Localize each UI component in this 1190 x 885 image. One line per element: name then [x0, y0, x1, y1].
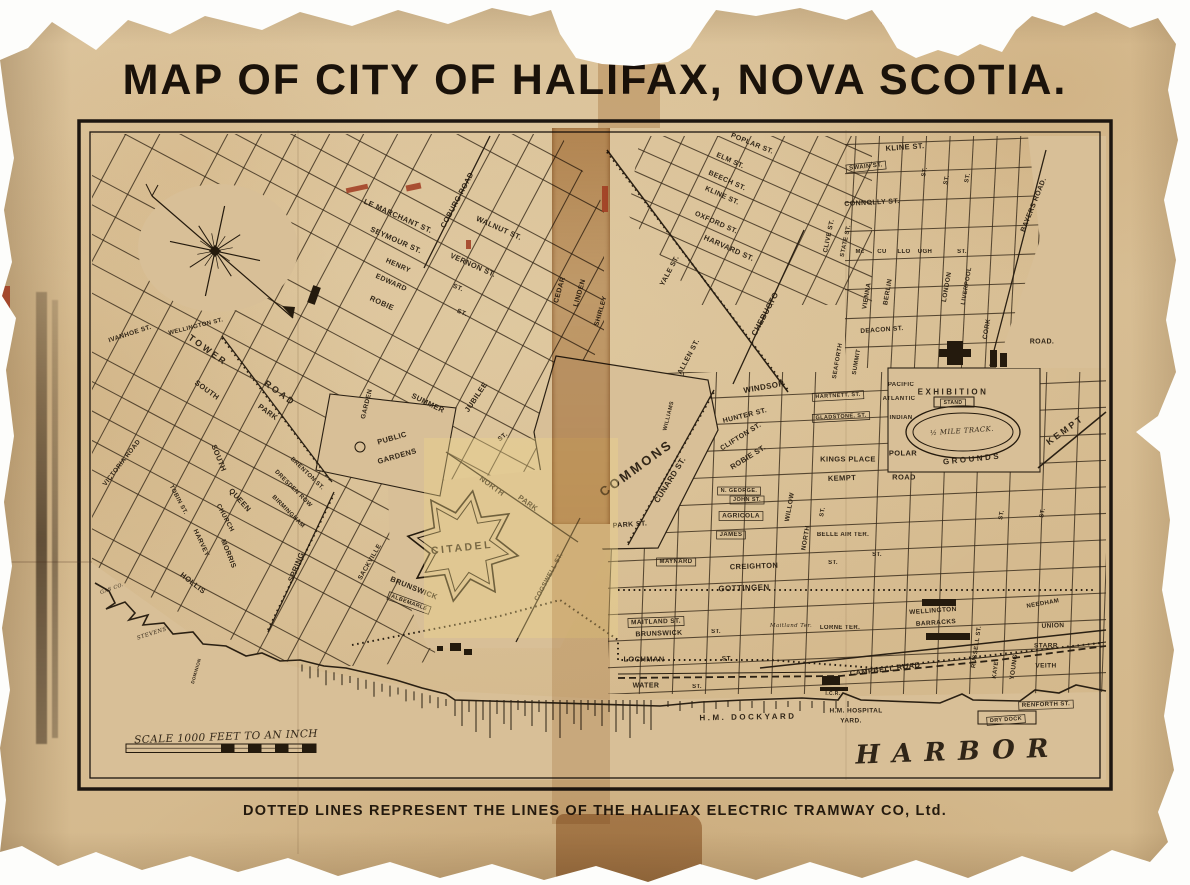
map-label: HARVEY [192, 528, 211, 558]
map-label: CAMPBELL ROAD [849, 660, 921, 678]
map-label: ST. [957, 249, 967, 255]
svg-text:I.C.R.: I.C.R. [825, 691, 840, 697]
map-label: INDIAN [889, 415, 912, 421]
svg-text:ST.: ST. [456, 308, 469, 319]
map-label: MORRIS [219, 539, 237, 570]
svg-text:ST.: ST. [711, 629, 721, 635]
tear-mark [881, 4, 901, 28]
map-label: ROAD [262, 378, 297, 408]
svg-text:DEACON ST.: DEACON ST. [860, 325, 904, 335]
svg-text:Mc: Mc [855, 249, 864, 255]
svg-text:STARR: STARR [1034, 643, 1058, 650]
paper-sheet: MAP OF CITY OF HALIFAX, NOVA SCOTIA. [0, 0, 1190, 885]
map-label: BRUNSWICK [635, 630, 682, 639]
svg-text:MAITLAND ST.: MAITLAND ST. [631, 618, 681, 627]
svg-text:LORNE TER.: LORNE TER. [820, 625, 860, 631]
map-label: LOCHMAN [623, 655, 664, 664]
svg-text:VICTORIA ROAD: VICTORIA ROAD [102, 438, 143, 487]
map-label: PARK [256, 402, 279, 422]
map-label: GOTTINGEN [718, 583, 769, 594]
map-label: N. GEORGE. [718, 487, 761, 495]
map-label: KAYE [992, 661, 1000, 679]
map-label: WILLOW [784, 491, 796, 522]
svg-text:JOHN ST.: JOHN ST. [733, 497, 761, 503]
map-label: CORK [982, 318, 992, 340]
map-label: ST. [819, 507, 827, 518]
svg-text:ROBIE ST.: ROBIE ST. [729, 443, 768, 472]
scanned-map-page: MAP OF CITY OF HALIFAX, NOVA SCOTIA. [0, 0, 1190, 885]
svg-text:KEMPT: KEMPT [828, 473, 857, 483]
svg-text:WELLINGTON: WELLINGTON [909, 606, 957, 616]
map-label: ST. [943, 175, 951, 186]
svg-text:ST.: ST. [819, 507, 827, 518]
map-label: KLINE ST. [885, 141, 925, 153]
svg-text:ATLANTIC: ATLANTIC [883, 396, 916, 402]
map-label: ST. [921, 167, 929, 178]
svg-text:BELLE AIR TER.: BELLE AIR TER. [817, 532, 869, 538]
svg-text:ST.: ST. [1039, 508, 1047, 519]
map-label: ST. [722, 656, 733, 663]
map-label: STAND [941, 399, 966, 407]
map-label: MAITLAND ST. [628, 617, 684, 628]
svg-text:NEEDHAM: NEEDHAM [1026, 598, 1060, 610]
map-label: Maitland Ter. [769, 623, 812, 629]
map-label: ST. [828, 560, 838, 566]
map-label: YARD. [840, 718, 862, 725]
svg-text:Maitland Ter.: Maitland Ter. [769, 623, 812, 629]
map-label: QUEEN [227, 486, 253, 513]
map-label: H.M. DOCKYARD [699, 712, 796, 723]
map-label: STARR [1034, 643, 1058, 650]
map-label: VERNON ST. [449, 251, 497, 279]
svg-text:EXHIBITION: EXHIBITION [918, 388, 989, 397]
svg-text:WILLOW: WILLOW [784, 491, 796, 522]
svg-text:KLINE ST.: KLINE ST. [704, 185, 740, 206]
map-label: UNION [1041, 622, 1064, 630]
svg-text:IVANHOE ST.: IVANHOE ST. [108, 324, 153, 344]
map-label: CREIGHTON [730, 561, 779, 572]
map-label: KEMPT [828, 473, 857, 483]
svg-text:HOLLIS: HOLLIS [178, 570, 207, 596]
map-label: ROBIE ST. [729, 443, 768, 472]
map-label: CHEBUCTO [750, 291, 781, 338]
svg-text:JAMES: JAMES [720, 532, 743, 538]
svg-text:CONNOLLY ST.: CONNOLLY ST. [844, 198, 900, 208]
svg-text:ST.: ST. [722, 656, 733, 663]
map-label: HOLLIS [178, 570, 207, 596]
svg-text:WATER: WATER [633, 683, 660, 690]
svg-text:SEAFORTH: SEAFORTH [832, 343, 844, 380]
svg-text:CHEBUCTO: CHEBUCTO [750, 291, 781, 338]
map-label: VEITH [1035, 663, 1056, 670]
map-label: SHIRLEY [593, 295, 608, 327]
building-block [450, 643, 461, 651]
svg-text:STAND: STAND [944, 400, 963, 406]
svg-text:CORK: CORK [982, 318, 992, 340]
svg-text:HARVEY: HARVEY [192, 528, 211, 558]
map-label: POLAR [889, 449, 917, 458]
map-label: HENRY [385, 257, 412, 274]
svg-text:BERLIN: BERLIN [882, 278, 894, 305]
map-label: WELLINGTON [909, 606, 957, 616]
svg-text:ALLEN ST.: ALLEN ST. [677, 338, 701, 376]
map-label: ST. [998, 510, 1006, 521]
svg-text:LLO: LLO [897, 249, 910, 255]
svg-text:ROAD: ROAD [262, 378, 297, 408]
building-block [464, 649, 472, 655]
svg-text:ROAD.: ROAD. [1030, 339, 1055, 346]
svg-text:N. GEORGE.: N. GEORGE. [721, 488, 758, 494]
map-label: IVANHOE ST. [108, 324, 153, 344]
svg-text:SACKVILLE: SACKVILLE [357, 543, 383, 582]
svg-text:ST.: ST. [828, 560, 838, 566]
map-label: PACIFIC [888, 382, 915, 388]
svg-text:ROAD: ROAD [892, 473, 916, 482]
map-label: SACKVILLE [357, 543, 383, 582]
map-label: BERLIN [882, 278, 894, 305]
svg-text:PACIFIC: PACIFIC [888, 382, 915, 388]
svg-text:ST.: ST. [497, 431, 510, 443]
map-label: ST. [497, 431, 510, 443]
map-label: SWAIN ST. [846, 161, 886, 173]
map-label: JAMES [717, 531, 746, 539]
map-label: ST. [692, 684, 702, 690]
map-label: KLINE ST. [704, 185, 740, 206]
svg-text:SHIRLEY: SHIRLEY [593, 295, 608, 327]
svg-text:MORRIS: MORRIS [219, 539, 237, 570]
svg-text:WALNUT ST.: WALNUT ST. [475, 214, 523, 242]
map-label: CEDAR [553, 276, 567, 304]
building-block [990, 350, 997, 367]
svg-text:ST.: ST. [943, 175, 951, 186]
bayers-corner [996, 136, 1106, 368]
map-label: MAYNARD [657, 558, 696, 566]
map-label: CU [877, 249, 886, 255]
building-block [307, 285, 321, 305]
map-label: BELLE AIR TER. [817, 532, 869, 538]
barracks-building [922, 599, 956, 606]
svg-text:VEITH: VEITH [1035, 663, 1056, 670]
map-label: SUMMIT [852, 349, 862, 376]
map-label: WATER [633, 683, 660, 690]
building-block [1000, 353, 1007, 367]
map-label: H.M. HOSPITAL [829, 708, 882, 715]
svg-text:QUEEN: QUEEN [227, 486, 253, 513]
map-label: DEACON ST. [860, 325, 904, 335]
map-label: ROAD. [1030, 339, 1055, 346]
map-label: KINGS PLACE [820, 455, 876, 464]
barracks-building [926, 633, 970, 640]
map-label: ROBIE [368, 294, 395, 313]
map-label: HARTNETT. ST. [812, 391, 864, 402]
map-label: LORNE TER. [820, 625, 860, 631]
map-label: EXHIBITION [918, 388, 989, 397]
exhibition-building-wing [939, 349, 971, 357]
svg-text:ST.: ST. [872, 552, 882, 558]
map-label: VICTORIA ROAD [102, 438, 143, 487]
svg-text:KLINE ST.: KLINE ST. [885, 141, 925, 153]
svg-text:INDIAN: INDIAN [889, 415, 912, 421]
svg-text:ST.: ST. [692, 684, 702, 690]
map-label: CONNOLLY ST. [844, 198, 900, 208]
svg-text:CEDAR: CEDAR [553, 276, 567, 304]
svg-text:H.M. HOSPITAL: H.M. HOSPITAL [829, 708, 882, 715]
svg-text:BRUNSWICK: BRUNSWICK [635, 630, 682, 639]
svg-text:CHURCH: CHURCH [215, 503, 236, 533]
map-label: ST. [872, 552, 882, 558]
svg-text:POLAR: POLAR [889, 449, 917, 458]
svg-text:ST.: ST. [957, 249, 967, 255]
map-label: AGRICOLA [719, 512, 763, 521]
svg-text:ROBIE: ROBIE [368, 294, 395, 313]
svg-text:AGRICOLA: AGRICOLA [722, 513, 760, 520]
svg-text:UGH: UGH [918, 249, 933, 255]
map-label: ATLANTIC [883, 396, 916, 402]
svg-text:SUMMIT: SUMMIT [852, 349, 862, 376]
map-label: Mc [855, 249, 864, 255]
map-label: KEMPT [1044, 413, 1085, 447]
map-label: ST. [1039, 508, 1047, 519]
map-label: I.C.R. [825, 691, 840, 697]
map-canvas: LE MARCHANT ST.COBURG ROADWALNUT ST.SEYM… [0, 0, 1190, 885]
map-label: UGH [918, 249, 933, 255]
svg-text:CREIGHTON: CREIGHTON [730, 561, 779, 572]
svg-text:ST.: ST. [921, 167, 929, 178]
svg-text:HENRY: HENRY [385, 257, 412, 274]
svg-text:KINGS PLACE: KINGS PLACE [820, 455, 876, 464]
svg-text:CAMPBELL ROAD: CAMPBELL ROAD [849, 660, 921, 678]
building-block [437, 646, 443, 651]
map-label: ROAD [892, 473, 916, 482]
map-label: ST. [456, 308, 469, 319]
map-label: SOUTH [193, 378, 221, 402]
map-label: TOBIN ST. [168, 484, 189, 516]
map-label: GLADSTONE. ST. [812, 412, 869, 423]
tramway-note: DOTTED LINES REPRESENT THE LINES OF THE … [0, 803, 1190, 819]
svg-text:LOCHMAN: LOCHMAN [623, 655, 664, 664]
map-label: NEEDHAM [1026, 598, 1060, 610]
map-label: ST. [711, 629, 721, 635]
map-label: ALLEN ST. [677, 338, 701, 376]
svg-text:H.M. DOCKYARD: H.M. DOCKYARD [699, 712, 796, 723]
svg-text:GOTTINGEN: GOTTINGEN [718, 583, 769, 594]
icr-depot [822, 676, 840, 685]
map-label: WALNUT ST. [475, 214, 523, 242]
map-label: LLO [897, 249, 910, 255]
svg-text:MAYNARD: MAYNARD [660, 559, 693, 565]
svg-text:ST.: ST. [998, 510, 1006, 521]
map-label: WELLINGTON ST. [168, 317, 224, 336]
svg-text:KEMPT: KEMPT [1044, 413, 1085, 447]
svg-text:TOBIN ST.: TOBIN ST. [168, 484, 189, 516]
svg-text:WELLINGTON ST.: WELLINGTON ST. [168, 317, 224, 336]
svg-text:KAYE: KAYE [992, 661, 1000, 679]
svg-text:VERNON ST.: VERNON ST. [449, 251, 497, 279]
svg-text:UNION: UNION [1041, 622, 1064, 630]
map-label: CHURCH [215, 503, 236, 533]
svg-text:YARD.: YARD. [840, 718, 862, 725]
svg-text:PARK: PARK [256, 402, 279, 422]
map-label: JOHN ST. [730, 496, 764, 504]
map-label: SEAFORTH [832, 343, 844, 380]
svg-text:SOUTH: SOUTH [193, 378, 221, 402]
svg-text:CU: CU [877, 249, 886, 255]
